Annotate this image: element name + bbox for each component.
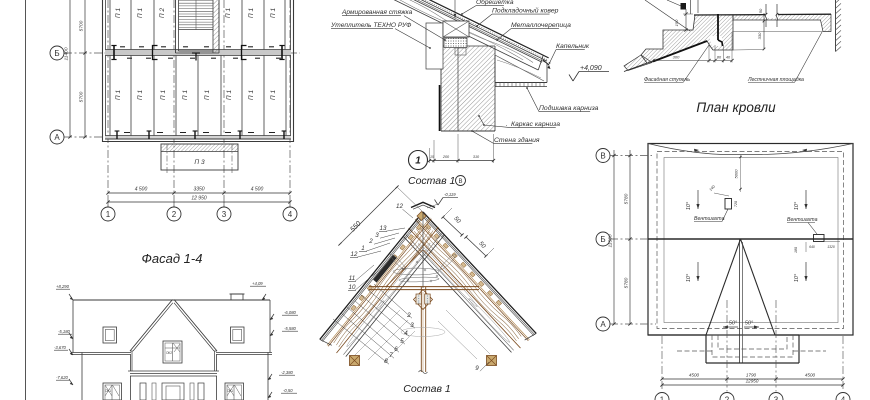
- svg-text:13: 13: [380, 225, 387, 232]
- svg-text:200: 200: [442, 155, 450, 159]
- svg-text:5700: 5700: [79, 91, 85, 102]
- svg-text:10°: 10°: [686, 201, 692, 210]
- svg-text:11: 11: [349, 275, 355, 282]
- svg-text:В: В: [600, 151, 605, 160]
- svg-text:4 500: 4 500: [135, 187, 148, 193]
- svg-text:5780: 5780: [624, 277, 630, 288]
- svg-text:-6,080: -6,080: [284, 310, 297, 315]
- svg-text:5780: 5780: [624, 193, 630, 204]
- svg-text:Армированная стяжка: Армированная стяжка: [341, 9, 413, 16]
- svg-text:4500: 4500: [805, 373, 816, 378]
- svg-text:5000: 5000: [734, 169, 739, 179]
- svg-text:3: 3: [375, 232, 379, 239]
- svg-text:Фасад 1-4: Фасад 1-4: [142, 251, 203, 266]
- svg-text:-2,380: -2,380: [281, 370, 294, 375]
- svg-text:П 1: П 1: [115, 90, 122, 101]
- svg-text:150: 150: [674, 19, 679, 26]
- svg-text:4500: 4500: [689, 373, 700, 378]
- svg-text:Вентшахта: Вентшахта: [787, 217, 818, 223]
- svg-text:П 1: П 1: [204, 90, 211, 101]
- svg-text:2: 2: [368, 238, 373, 245]
- svg-text:П 1: П 1: [270, 90, 277, 101]
- svg-text:Металлочерепица: Металлочерепица: [511, 22, 571, 29]
- svg-text:ОК1: ОК1: [105, 389, 111, 393]
- svg-text:7: 7: [389, 352, 393, 359]
- svg-text:12: 12: [351, 251, 358, 258]
- svg-text:-0,119: -0,119: [444, 192, 456, 197]
- svg-text:11560: 11560: [608, 234, 614, 247]
- svg-text:Лестничная площадка: Лестничная площадка: [747, 77, 804, 83]
- svg-text:8: 8: [384, 358, 388, 365]
- svg-text:3: 3: [410, 322, 414, 329]
- svg-text:Состав 1: Состав 1: [403, 383, 450, 395]
- svg-text:12 950: 12 950: [191, 196, 207, 202]
- svg-text:-3,670: -3,670: [54, 345, 67, 350]
- svg-text:Б: Б: [54, 49, 59, 58]
- svg-text:Подшивка карниза: Подшивка карниза: [539, 104, 599, 112]
- svg-text:1: 1: [361, 245, 364, 252]
- svg-text:640: 640: [809, 245, 815, 249]
- svg-text:4: 4: [288, 210, 293, 219]
- svg-text:П 1: П 1: [248, 90, 255, 101]
- svg-text:Капельник: Капельник: [556, 43, 590, 50]
- svg-text:П 1: П 1: [225, 8, 232, 19]
- svg-text:П 1: П 1: [248, 8, 255, 19]
- svg-text:180: 180: [794, 247, 798, 253]
- svg-text:12950: 12950: [746, 379, 759, 384]
- svg-text:720: 720: [734, 201, 738, 207]
- svg-text:В: В: [458, 179, 462, 185]
- svg-text:Вентшахта: Вентшахта: [694, 216, 725, 222]
- svg-text:А: А: [600, 320, 606, 329]
- svg-text:2: 2: [172, 210, 177, 219]
- svg-text:1: 1: [660, 395, 665, 400]
- svg-text:330: 330: [757, 32, 762, 39]
- svg-text:4: 4: [404, 330, 408, 337]
- svg-text:Б: Б: [600, 235, 605, 244]
- svg-text:50: 50: [758, 8, 763, 13]
- svg-text:Обрешетка: Обрешетка: [476, 0, 514, 6]
- svg-text:5700: 5700: [79, 20, 85, 31]
- svg-text:4 500: 4 500: [251, 187, 264, 193]
- svg-text:2: 2: [725, 395, 730, 400]
- svg-text:300: 300: [673, 55, 680, 60]
- svg-text:+8,290: +8,290: [56, 284, 70, 289]
- svg-text:ОК1: ОК1: [227, 389, 233, 393]
- svg-text:50°: 50°: [729, 321, 738, 327]
- svg-text:П 2: П 2: [159, 8, 166, 19]
- svg-text:Стена здания: Стена здания: [494, 136, 540, 144]
- svg-text:Состав 1: Состав 1: [408, 175, 455, 187]
- svg-text:10: 10: [349, 284, 356, 291]
- svg-text:Утеплитель ТЕХНО РУФ: Утеплитель ТЕХНО РУФ: [330, 22, 411, 29]
- svg-text:Подкладочный ковер: Подкладочный ковер: [492, 7, 559, 15]
- svg-text:П 1: П 1: [270, 8, 277, 19]
- svg-text:1790: 1790: [746, 373, 757, 378]
- svg-text:П 1: П 1: [137, 8, 144, 19]
- svg-text:1320: 1320: [827, 245, 835, 249]
- svg-text:П 1: П 1: [226, 90, 233, 101]
- svg-text:1: 1: [106, 210, 111, 219]
- svg-text:4: 4: [841, 395, 846, 400]
- svg-text:15: 15: [430, 155, 434, 159]
- svg-text:3350: 3350: [193, 187, 204, 193]
- svg-text:10°: 10°: [686, 273, 692, 282]
- svg-text:3: 3: [774, 395, 779, 400]
- svg-text:Каркас карниза: Каркас карниза: [511, 121, 560, 128]
- svg-text:12: 12: [396, 203, 403, 210]
- svg-text:П 1: П 1: [160, 90, 167, 101]
- svg-text:-7,620: -7,620: [56, 375, 69, 380]
- svg-text:П 1: П 1: [115, 8, 122, 19]
- svg-text:11400: 11400: [64, 47, 70, 60]
- svg-text:9: 9: [475, 365, 479, 372]
- svg-text:П 3: П 3: [194, 159, 205, 166]
- svg-text:10°: 10°: [794, 201, 800, 210]
- svg-text:План кровли: План кровли: [696, 100, 776, 115]
- svg-text:3: 3: [222, 210, 227, 219]
- svg-text:П 1: П 1: [182, 90, 189, 101]
- svg-text:П 1: П 1: [137, 90, 144, 101]
- svg-text:1: 1: [415, 156, 421, 167]
- svg-text:5: 5: [400, 338, 404, 345]
- svg-text:+4,090: +4,090: [580, 65, 602, 72]
- svg-text:50°: 50°: [745, 321, 754, 327]
- svg-text:+4,09: +4,09: [252, 281, 263, 286]
- svg-text:А: А: [54, 133, 60, 142]
- svg-text:-5,580: -5,580: [284, 326, 297, 331]
- svg-text:10°: 10°: [794, 273, 800, 282]
- svg-text:310: 310: [473, 155, 480, 159]
- svg-text:-0,50: -0,50: [283, 388, 293, 393]
- svg-text:-5,180: -5,180: [58, 329, 71, 334]
- svg-text:ОК2: ОК2: [166, 351, 172, 355]
